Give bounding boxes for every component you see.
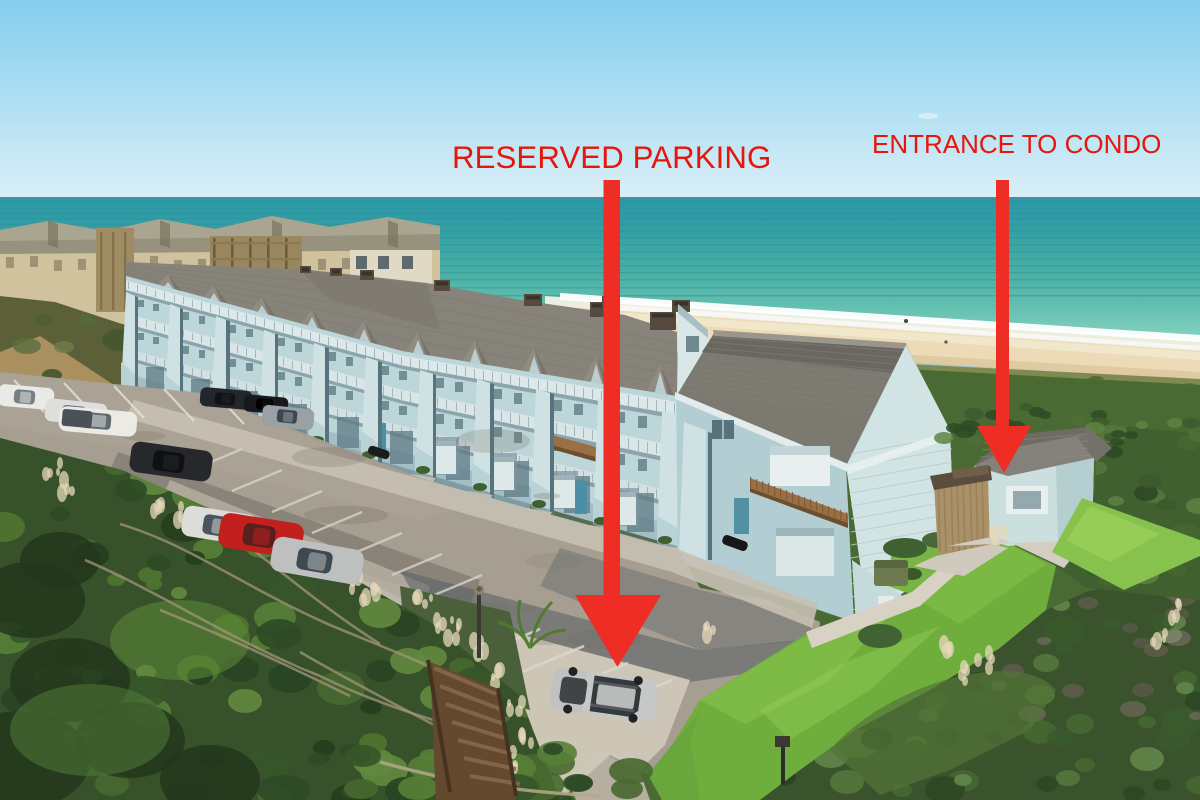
- svg-text:ENTRANCE TO CONDO: ENTRANCE TO CONDO: [872, 129, 1161, 159]
- svg-text:RESERVED PARKING: RESERVED PARKING: [452, 140, 771, 175]
